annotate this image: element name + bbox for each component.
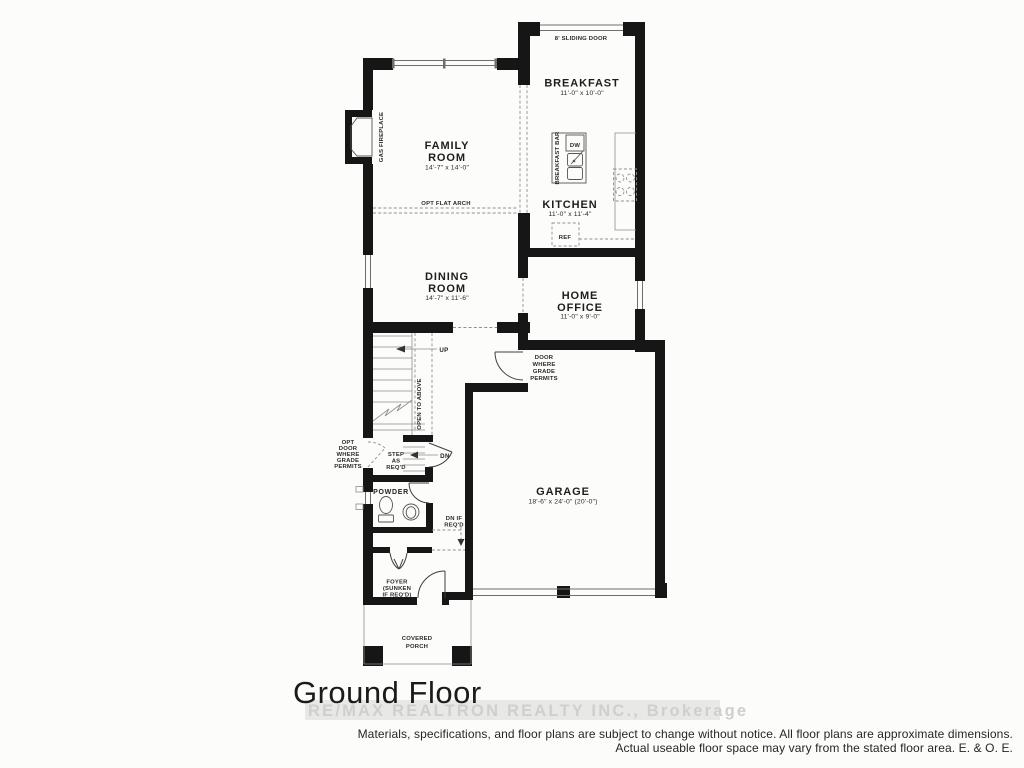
kitchen-label: KITCHEN: [542, 199, 597, 211]
powder-label: POWDER: [373, 489, 409, 496]
stair-break-line: [373, 400, 412, 421]
foyer-label3: IF REQ'D): [382, 593, 411, 599]
disclaimer-line2: Actual useable floor space may vary from…: [615, 741, 1013, 755]
disclaimer-line1: Materials, specifications, and floor pla…: [358, 727, 1013, 741]
dn-label: DN: [440, 453, 450, 460]
dw-label: DW: [570, 143, 580, 149]
grade-door-label2: WHERE: [533, 362, 556, 368]
up-label: UP: [439, 347, 448, 354]
home-office-label: HOME: [562, 290, 599, 302]
dn-if-label: DN IF: [446, 516, 463, 522]
page-title: Ground Floor: [293, 675, 482, 710]
family-room-label2: ROOM: [428, 152, 466, 164]
family-room-label: FAMILY: [425, 140, 470, 152]
faucet: [571, 151, 583, 164]
grade-door-label4: PERMITS: [530, 376, 558, 382]
floor-plan-page: FAMILY ROOM 14'-7" x 14'-0" DINING ROOM …: [0, 0, 1024, 768]
dining-room-label: DINING: [425, 271, 469, 283]
open-to-above-label: OPEN TO ABOVE: [417, 378, 423, 429]
opt-door-label5: PERMITS: [334, 464, 362, 470]
toilet: [380, 497, 393, 514]
sliding-door-label: 8' SLIDING DOOR: [555, 36, 608, 42]
walls: [345, 22, 667, 666]
step-label2: AS: [392, 459, 401, 465]
step-label3: REQ'D: [386, 465, 405, 471]
breakfast-label: BREAKFAST: [544, 78, 619, 90]
floor-plan-canvas: FAMILY ROOM 14'-7" x 14'-0" DINING ROOM …: [0, 0, 1024, 768]
footer: RE/MAX REALTRON REALTY INC., Brokerage G…: [293, 675, 1013, 755]
dn-if-label2: REQ'D: [444, 523, 463, 529]
gas-fireplace-label: GAS FIREPLACE: [379, 112, 385, 162]
step-label: STEP: [388, 452, 404, 458]
foyer-double-doors: [390, 553, 407, 569]
breakfast-bar-label: BREAKFAST BAR: [555, 131, 561, 185]
grade-door-label3: GRADE: [533, 369, 555, 375]
family-room-dims: 14'-7" x 14'-0": [425, 165, 469, 172]
home-office-label2: OFFICE: [557, 302, 603, 314]
garage-entry-door: [495, 352, 523, 380]
cooktop: [614, 169, 637, 201]
porch-post-right: [452, 646, 472, 666]
ref-label: REF: [559, 235, 572, 241]
powder-door: [409, 483, 429, 503]
foyer-label2: (SUNKEN: [383, 586, 411, 592]
home-office-dims: 11'-0" x 9'-0": [560, 314, 600, 321]
garage-dims: 18'-6" x 24'-0" (20'-0"): [528, 499, 597, 506]
porch-post-left: [363, 646, 383, 666]
opt-grade-door: [368, 442, 385, 467]
opt-flat-arch-label: OPT FLAT ARCH: [421, 201, 470, 207]
fireplace-box: [351, 118, 372, 156]
front-door: [418, 571, 445, 598]
kitchen-dims: 11'-0" x 11'-4": [548, 211, 591, 218]
porch-label: COVERED: [402, 636, 433, 642]
garage-door-post: [557, 586, 570, 598]
breakfast-dims: 11'-0" x 10'-0": [560, 90, 604, 97]
porch-label2: PORCH: [406, 644, 428, 650]
foyer-label: FOYER: [386, 580, 408, 586]
grade-door-label: DOOR: [535, 355, 554, 361]
dining-room-dims: 14'-7" x 11'-6": [425, 295, 469, 302]
garage-label: GARAGE: [536, 486, 590, 498]
dining-room-label2: ROOM: [428, 283, 466, 295]
